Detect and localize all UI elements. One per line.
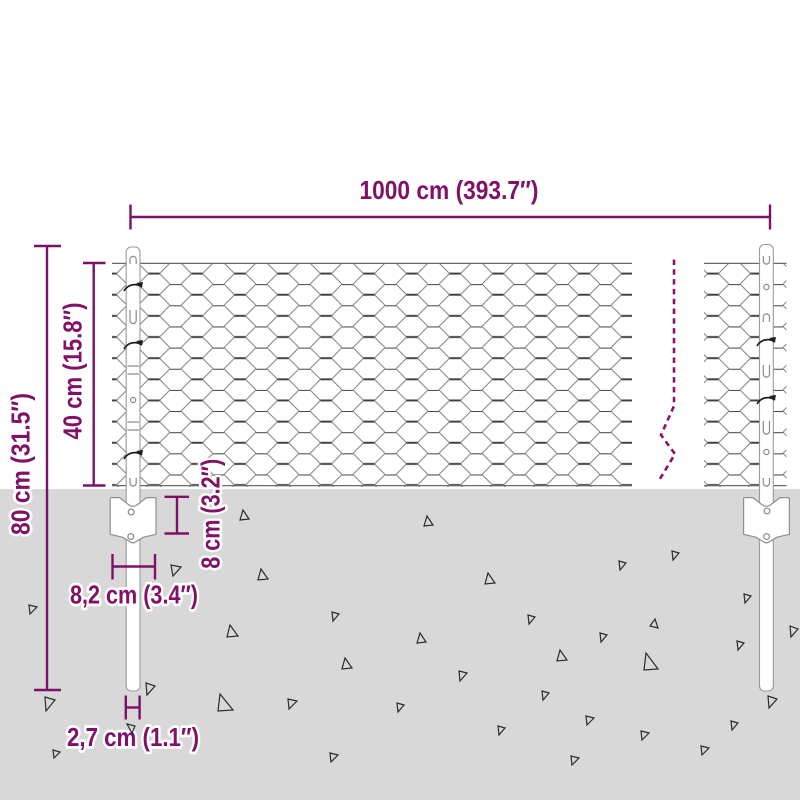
- svg-text:8 cm (3.2″): 8 cm (3.2″): [196, 459, 226, 569]
- svg-text:8,2 cm (3.4″): 8,2 cm (3.4″): [70, 580, 198, 610]
- svg-text:40 cm (15.8″): 40 cm (15.8″): [58, 303, 88, 440]
- svg-text:2,7 cm (1.1″): 2,7 cm (1.1″): [67, 722, 199, 752]
- svg-text:1000 cm (393.7″): 1000 cm (393.7″): [360, 175, 539, 205]
- svg-text:80 cm (31.5″): 80 cm (31.5″): [6, 393, 36, 535]
